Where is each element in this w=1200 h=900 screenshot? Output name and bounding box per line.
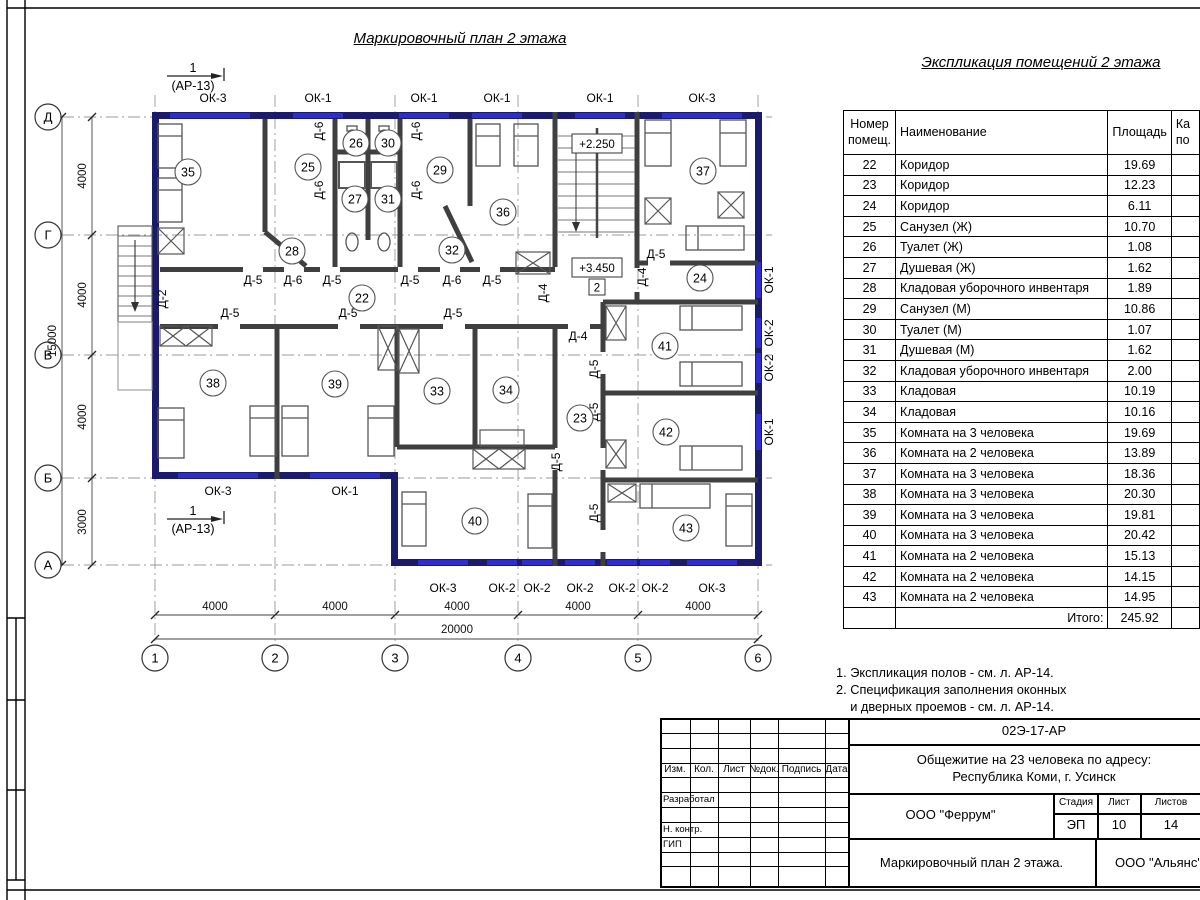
table-row: 39Комната на 3 человека19.81	[844, 505, 1200, 526]
note-line: 2. Спецификация заполнения оконных	[836, 681, 1066, 698]
room-area-cell: 1.89	[1108, 278, 1171, 299]
svg-text:А: А	[44, 558, 53, 573]
notes: 1. Экспликация полов - см. л. АР-14.2. С…	[836, 664, 1066, 715]
dimension-total-label: 20000	[441, 624, 473, 636]
room-area-cell: 20.30	[1108, 484, 1171, 505]
design-org: ООО "Феррум"	[848, 793, 1053, 838]
room-number-bubble: 25	[295, 154, 321, 180]
svg-text:3: 3	[391, 651, 398, 666]
svg-text:(АР-13): (АР-13)	[171, 522, 214, 536]
window-label: ОК-3	[689, 91, 716, 105]
sink-icon	[346, 233, 358, 251]
svg-text:34: 34	[499, 384, 513, 398]
axis-bubble-col: 5	[625, 645, 651, 671]
room-number-cell: 38	[844, 484, 896, 505]
table-row: 33Кладовая10.19	[844, 381, 1200, 402]
table-row: 36Комната на 2 человека13.89	[844, 443, 1200, 464]
room-area-cell: 10.19	[1108, 381, 1171, 402]
door-label: Д-5	[444, 306, 463, 320]
room-number-bubble: 24	[687, 265, 713, 291]
svg-text:6: 6	[754, 651, 761, 666]
room-number-cell: 33	[844, 381, 896, 402]
sheet-label: Лист	[1098, 793, 1140, 813]
room-number-cell: 30	[844, 319, 896, 340]
table-row: 32Кладовая уборочного инвентаря2.00	[844, 360, 1200, 381]
dimension-label: 4000	[444, 601, 470, 613]
window-label: ОК-2	[642, 581, 669, 595]
axis-bubble-col: 3	[382, 645, 408, 671]
svg-text:35: 35	[181, 166, 195, 180]
room-number-cell: 43	[844, 587, 896, 608]
room-category-cell	[1171, 196, 1199, 217]
svg-text:40: 40	[468, 515, 482, 529]
axis-bubble-col: 1	[142, 645, 168, 671]
window-label: ОК-1	[332, 484, 359, 498]
door-label: Д-2	[155, 289, 169, 308]
axis-bubble-row: Д	[35, 104, 61, 130]
sink-icon	[378, 233, 390, 251]
room-category-cell	[1171, 381, 1199, 402]
room-name-cell: Душевая (Ж)	[896, 257, 1108, 278]
door-label: Д-4	[635, 267, 649, 286]
schedule-header-name: Наименование	[896, 111, 1108, 155]
door-label: Д-4	[536, 283, 550, 302]
svg-text:28: 28	[285, 245, 299, 259]
svg-text:39: 39	[328, 378, 342, 392]
total-value: 245.92	[1108, 608, 1171, 629]
table-row: 35Комната на 3 человека19.69	[844, 422, 1200, 443]
room-number-bubble: 42	[653, 419, 679, 445]
sheet-number: 10	[1098, 813, 1140, 838]
room-number-cell: 41	[844, 546, 896, 567]
room-number-cell: 34	[844, 402, 896, 423]
axis-bubble-row: Г	[35, 222, 61, 248]
svg-text:4: 4	[514, 651, 521, 666]
room-number-bubble: 38	[200, 370, 226, 396]
dimension-label: 4000	[565, 601, 591, 613]
table-row: 28Кладовая уборочного инвентаря1.89	[844, 278, 1200, 299]
room-number-bubble: 35	[175, 159, 201, 185]
room-category-cell	[1171, 216, 1199, 237]
axis-bubble-row: А	[35, 552, 61, 578]
room-number-bubble: 32	[439, 237, 465, 263]
door-label: Д-5	[647, 247, 666, 261]
room-category-cell	[1171, 463, 1199, 484]
window-label: ОК-1	[305, 91, 332, 105]
door-label: Д-4	[569, 329, 588, 343]
room-number-cell: 24	[844, 196, 896, 217]
room-name-cell: Коридор	[896, 155, 1108, 176]
svg-text:23: 23	[573, 412, 587, 426]
elevation-mark: +3.450	[572, 258, 622, 277]
svg-text:Д: Д	[44, 110, 53, 125]
room-category-cell	[1171, 484, 1199, 505]
svg-text:43: 43	[679, 522, 693, 536]
window-label: ОК-1	[484, 91, 511, 105]
level-marker: 2	[589, 279, 605, 295]
room-name-cell: Коридор	[896, 175, 1108, 196]
room-schedule-table: Номер помещ. Наименование Площадь Ка по …	[843, 110, 1200, 629]
room-category-cell	[1171, 175, 1199, 196]
room-number-bubble: 33	[424, 378, 450, 404]
svg-text:27: 27	[348, 193, 362, 207]
stage-value: ЭП	[1055, 813, 1097, 838]
room-area-cell: 19.81	[1108, 505, 1171, 526]
room-name-cell: Комната на 2 человека	[896, 566, 1108, 587]
svg-text:38: 38	[206, 377, 220, 391]
room-area-cell: 19.69	[1108, 422, 1171, 443]
door-label: Д-6	[312, 180, 326, 199]
window-label: ОК-2	[567, 581, 594, 595]
room-number-cell: 42	[844, 566, 896, 587]
dimension-label: 3000	[77, 509, 89, 535]
room-name-cell: Кладовая уборочного инвентаря	[896, 360, 1108, 381]
svg-text:1: 1	[190, 61, 197, 75]
room-number-cell: 37	[844, 463, 896, 484]
window-label: ОК-2	[489, 581, 516, 595]
svg-text:37: 37	[696, 165, 710, 179]
svg-text:Б: Б	[44, 471, 53, 486]
svg-text:(АР-13): (АР-13)	[171, 79, 214, 93]
room-number-cell: 22	[844, 155, 896, 176]
room-name-cell: Комната на 3 человека	[896, 484, 1108, 505]
svg-text:Г: Г	[44, 228, 51, 243]
role-label: ГИП	[661, 837, 721, 852]
room-number-cell: 31	[844, 340, 896, 361]
room-number-cell: 40	[844, 525, 896, 546]
door-label: Д-5	[244, 273, 263, 287]
room-name-cell: Комната на 2 человека	[896, 443, 1108, 464]
room-number-bubble: 23	[567, 405, 593, 431]
window-label: ОК-1	[762, 418, 776, 445]
window-label: ОК-2	[524, 581, 551, 595]
table-row: 41Комната на 2 человека15.13	[844, 546, 1200, 567]
table-row: 37Комната на 3 человека18.36	[844, 463, 1200, 484]
dimension-label: 4000	[77, 404, 89, 430]
dimension-label: 4000	[202, 601, 228, 613]
room-category-cell	[1171, 299, 1199, 320]
room-name-cell: Кладовая	[896, 402, 1108, 423]
window-label: ОК-2	[762, 319, 776, 346]
title-block: Изм.Кол.Лист№док.ПодписьДатаРазработалН.…	[660, 718, 1200, 888]
room-number-cell: 36	[844, 443, 896, 464]
svg-text:29: 29	[433, 164, 447, 178]
svg-text:33: 33	[430, 385, 444, 399]
dimension-total-label: 15000	[47, 325, 59, 357]
note-line: и дверных проемов - см. л. АР-14.	[836, 698, 1066, 715]
room-area-cell: 12.23	[1108, 175, 1171, 196]
room-category-cell	[1171, 278, 1199, 299]
room-area-cell: 10.70	[1108, 216, 1171, 237]
revision-column-label: Дата	[825, 763, 848, 777]
svg-text:31: 31	[381, 193, 395, 207]
room-number-bubble: 31	[375, 186, 401, 212]
sheets-total: 14	[1141, 813, 1200, 838]
room-area-cell: 1.08	[1108, 237, 1171, 258]
table-row: 31Душевая (М)1.62	[844, 340, 1200, 361]
contractor-org: ООО "Альянс"	[1097, 838, 1200, 888]
room-name-cell: Комната на 3 человека	[896, 463, 1108, 484]
room-area-cell: 14.95	[1108, 587, 1171, 608]
role-label: Разработал	[661, 792, 721, 807]
room-category-cell	[1171, 422, 1199, 443]
room-number-bubble: 22	[349, 285, 375, 311]
door-label: Д-5	[549, 452, 563, 471]
door-label: Д-6	[409, 180, 423, 199]
room-number-cell: 26	[844, 237, 896, 258]
room-area-cell: 15.13	[1108, 546, 1171, 567]
room-number-bubble: 26	[343, 130, 369, 156]
room-name-cell: Комната на 3 человека	[896, 525, 1108, 546]
room-area-cell: 1.62	[1108, 340, 1171, 361]
room-name-cell: Комната на 3 человека	[896, 422, 1108, 443]
svg-text:36: 36	[496, 206, 510, 220]
room-name-cell: Туалет (М)	[896, 319, 1108, 340]
table-row: 42Комната на 2 человека14.15	[844, 566, 1200, 587]
room-area-cell: 10.16	[1108, 402, 1171, 423]
window-label: ОК-3	[200, 91, 227, 105]
room-number-bubble: 28	[279, 238, 305, 264]
svg-text:42: 42	[659, 426, 673, 440]
room-name-cell: Комната на 2 человека	[896, 546, 1108, 567]
room-number-cell: 39	[844, 505, 896, 526]
revision-column-label: Лист	[718, 763, 750, 777]
window-label: ОК-3	[205, 484, 232, 498]
table-row: 23Коридор12.23	[844, 175, 1200, 196]
room-category-cell	[1171, 525, 1199, 546]
room-area-cell: 10.86	[1108, 299, 1171, 320]
svg-text:24: 24	[693, 272, 707, 286]
revision-column-label: Кол.	[690, 763, 718, 777]
door-label: Д-6	[409, 121, 423, 140]
schedule-title: Экспликация помещений 2 этажа	[900, 54, 1182, 71]
plan-title: Маркировочный план 2 этажа	[330, 30, 590, 47]
section-marker: 1(АР-13)	[167, 61, 224, 93]
svg-text:+2.250: +2.250	[579, 139, 615, 151]
svg-text:25: 25	[301, 161, 315, 175]
dimension-label: 4000	[685, 601, 711, 613]
svg-text:41: 41	[658, 340, 672, 354]
total-label: Итого:	[896, 608, 1108, 629]
document-code: 02Э-17-АР	[848, 718, 1200, 744]
room-category-cell	[1171, 257, 1199, 278]
axis-bubble-col: 6	[745, 645, 771, 671]
svg-text:5: 5	[634, 651, 641, 666]
table-row: 22Коридор19.69	[844, 155, 1200, 176]
drawing-name: Маркировочный план 2 этажа.	[848, 838, 1095, 888]
door-label: Д-5	[221, 306, 240, 320]
door-label: Д-5	[587, 359, 601, 378]
table-row: 24Коридор6.11	[844, 196, 1200, 217]
room-category-cell	[1171, 319, 1199, 340]
room-number-cell: 25	[844, 216, 896, 237]
room-category-cell	[1171, 443, 1199, 464]
room-number-bubble: 40	[462, 508, 488, 534]
axis-bubble-col: 4	[505, 645, 531, 671]
table-row: 30Туалет (М)1.07	[844, 319, 1200, 340]
schedule-header-area: Площадь	[1108, 111, 1171, 155]
room-area-cell: 20.42	[1108, 525, 1171, 546]
axis-bubble-row: Б	[35, 465, 61, 491]
table-row: 38Комната на 3 человека20.30	[844, 484, 1200, 505]
window-label: ОК-1	[587, 91, 614, 105]
table-row: 27Душевая (Ж)1.62	[844, 257, 1200, 278]
room-name-cell: Душевая (М)	[896, 340, 1108, 361]
revision-column-label: Изм.	[660, 763, 690, 777]
door-label: Д-5	[483, 273, 502, 287]
room-number-bubble: 27	[342, 186, 368, 212]
object-name-line2: Республика Коми, г. Усинск	[952, 769, 1115, 785]
revision-column-label: Подпись	[778, 763, 825, 777]
room-category-cell	[1171, 360, 1199, 381]
room-name-cell: Туалет (Ж)	[896, 237, 1108, 258]
room-number-cell: 27	[844, 257, 896, 278]
svg-text:1: 1	[190, 504, 197, 518]
table-row: 26Туалет (Ж)1.08	[844, 237, 1200, 258]
room-area-cell: 18.36	[1108, 463, 1171, 484]
room-category-cell	[1171, 587, 1199, 608]
schedule-header-number: Номер помещ.	[844, 111, 896, 155]
room-area-cell: 13.89	[1108, 443, 1171, 464]
window-label: ОК-3	[699, 581, 726, 595]
window-label: ОК-2	[609, 581, 636, 595]
table-row: 40Комната на 3 человека20.42	[844, 525, 1200, 546]
room-area-cell: 6.11	[1108, 196, 1171, 217]
room-number-bubble: 41	[652, 333, 678, 359]
room-name-cell: Коридор	[896, 196, 1108, 217]
stage-label: Стадия	[1055, 793, 1097, 813]
room-category-cell	[1171, 505, 1199, 526]
svg-text:22: 22	[355, 292, 369, 306]
object-name-line1: Общежитие на 23 человека по адресу:	[917, 752, 1151, 768]
table-row: 29Санузел (М)10.86	[844, 299, 1200, 320]
svg-text:30: 30	[381, 137, 395, 151]
window-label: ОК-3	[430, 581, 457, 595]
total-row: Итого:245.92	[844, 608, 1200, 629]
room-category-cell	[1171, 402, 1199, 423]
sheets-label: Листов	[1141, 793, 1200, 813]
room-number-bubble: 30	[375, 130, 401, 156]
revision-column-label: №док.	[750, 763, 778, 777]
room-area-cell: 1.07	[1108, 319, 1171, 340]
room-category-cell	[1171, 237, 1199, 258]
table-row: 25Санузел (Ж)10.70	[844, 216, 1200, 237]
role-label: Н. контр.	[661, 822, 721, 837]
room-name-cell: Комната на 3 человека	[896, 505, 1108, 526]
room-category-cell	[1171, 340, 1199, 361]
room-area-cell: 19.69	[1108, 155, 1171, 176]
svg-text:2: 2	[594, 283, 600, 295]
door-label: Д-6	[312, 121, 326, 140]
room-number-bubble: 29	[427, 157, 453, 183]
room-number-bubble: 39	[322, 371, 348, 397]
room-area-cell: 2.00	[1108, 360, 1171, 381]
window-label: ОК-1	[411, 91, 438, 105]
dimension-label: 4000	[322, 601, 348, 613]
room-name-cell: Комната на 2 человека	[896, 587, 1108, 608]
door-label: Д-6	[443, 273, 462, 287]
svg-text:26: 26	[349, 137, 363, 151]
door-label: Д-6	[284, 273, 303, 287]
room-number-bubble: 36	[490, 199, 516, 225]
room-category-cell	[1171, 546, 1199, 567]
axis-bubble-col: 2	[262, 645, 288, 671]
room-number-cell: 32	[844, 360, 896, 381]
stairs-external	[118, 226, 152, 390]
room-name-cell: Санузел (М)	[896, 299, 1108, 320]
svg-text:32: 32	[445, 244, 459, 258]
door-label: Д-5	[323, 273, 342, 287]
room-number-cell: 35	[844, 422, 896, 443]
dimension-label: 4000	[77, 163, 89, 189]
room-area-cell: 1.62	[1108, 257, 1171, 278]
table-row: 34Кладовая10.16	[844, 402, 1200, 423]
room-number-bubble: 34	[493, 377, 519, 403]
room-number-cell: 23	[844, 175, 896, 196]
schedule-header-category: Ка по	[1171, 111, 1199, 155]
room-name-cell: Кладовая уборочного инвентаря	[896, 278, 1108, 299]
door-label: Д-5	[401, 273, 420, 287]
svg-text:+3.450: +3.450	[579, 263, 615, 275]
room-category-cell	[1171, 566, 1199, 587]
room-name-cell: Санузел (Ж)	[896, 216, 1108, 237]
dimension-label: 4000	[77, 282, 89, 308]
room-number-bubble: 37	[690, 158, 716, 184]
room-number-cell: 28	[844, 278, 896, 299]
room-number-bubble: 43	[673, 515, 699, 541]
door-label: Д-5	[587, 503, 601, 522]
section-marker: 1(АР-13)	[167, 504, 224, 536]
window-label: ОК-1	[762, 266, 776, 293]
room-number-cell: 29	[844, 299, 896, 320]
room-name-cell: Кладовая	[896, 381, 1108, 402]
note-line: 1. Экспликация полов - см. л. АР-14.	[836, 664, 1066, 681]
table-row: 43Комната на 2 человека14.95	[844, 587, 1200, 608]
elevation-mark: +2.250	[572, 134, 622, 153]
room-area-cell: 14.15	[1108, 566, 1171, 587]
room-category-cell	[1171, 155, 1199, 176]
window-label: ОК-2	[762, 354, 776, 381]
svg-text:1: 1	[151, 651, 158, 666]
svg-text:2: 2	[271, 651, 278, 666]
